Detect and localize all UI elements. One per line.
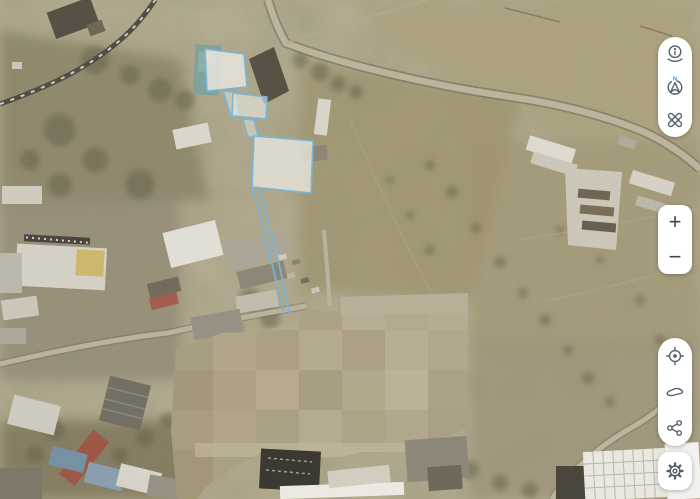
info-button[interactable] <box>658 37 692 70</box>
zoom-panel: + − <box>658 205 692 274</box>
satellite-imagery <box>0 0 700 499</box>
zoom-out-button[interactable]: − <box>658 240 692 275</box>
compass-north-icon: N <box>664 76 686 98</box>
zoom-out-label: − <box>669 246 682 268</box>
compass-button[interactable]: N <box>658 70 692 103</box>
locate-button[interactable] <box>658 338 692 374</box>
share-icon <box>664 417 686 439</box>
measure-button[interactable] <box>658 104 692 137</box>
zoom-in-label: + <box>669 211 682 233</box>
measure-icon <box>664 109 686 131</box>
settings-button[interactable] <box>658 452 692 490</box>
info-icon <box>664 43 686 65</box>
share-button[interactable] <box>658 410 692 446</box>
settings-panel <box>658 452 692 490</box>
map-viewport[interactable]: N + − <box>0 0 700 499</box>
locate-icon <box>664 345 686 367</box>
map-tools-panel: N <box>658 37 692 137</box>
gear-icon <box>664 460 686 482</box>
region-button[interactable] <box>658 374 692 410</box>
zoom-in-button[interactable]: + <box>658 205 692 240</box>
north-badge: N <box>673 77 677 83</box>
region-shape-icon <box>664 381 686 403</box>
map-actions-panel <box>658 338 692 446</box>
